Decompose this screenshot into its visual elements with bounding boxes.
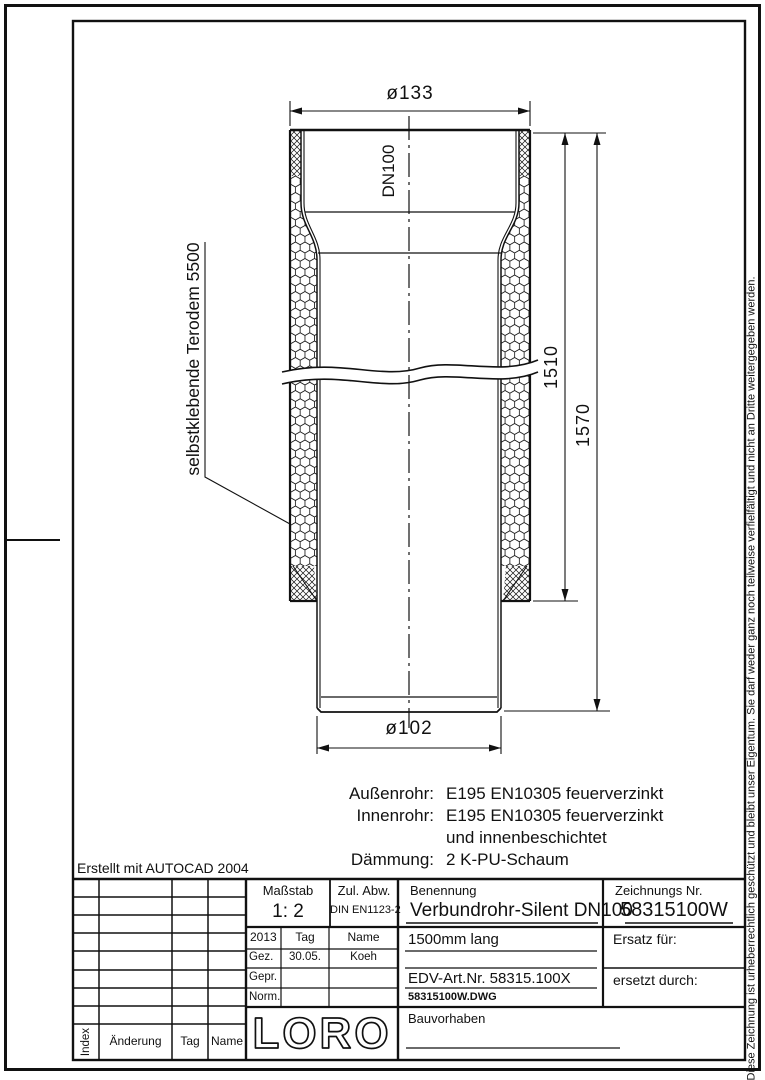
material-row: Innenrohr: E195 EN10305 feuerverzinkt <box>330 805 663 827</box>
material-label: Dämmung: <box>330 849 434 871</box>
dim-top-diameter: ø133 <box>350 83 470 105</box>
tolerance-value: DIN EN1123-2 <box>330 904 398 916</box>
dim-insulated-length: 1510 <box>542 332 560 402</box>
created-note: Erstellt mit AUTOCAD 2004 <box>77 860 249 876</box>
replaced-by-label: ersetzt durch: <box>613 972 698 988</box>
scale-label: Maßstab <box>246 883 330 898</box>
length-note: 1500mm lang <box>408 931 499 948</box>
approval-row-label: Norm. <box>249 991 280 1003</box>
approval-row-tag: 30.05. <box>281 951 329 963</box>
revision-index-label: Index <box>80 1022 92 1062</box>
material-label: Außenrohr: <box>330 783 434 805</box>
seal-hatch-top-right <box>519 131 529 176</box>
edv-art-no: EDV-Art.Nr. 58315.100X <box>408 970 571 987</box>
name-value: Verbundrohr-Silent DN100 <box>410 900 633 922</box>
revision-name-label: Name <box>208 1034 246 1048</box>
copyright-note: Diese Zeichnung ist urheberrechtlich ges… <box>746 281 759 1080</box>
file-name: 58315100W.DWG <box>408 991 497 1003</box>
scale-value: 1: 2 <box>246 901 330 923</box>
approval-col-tag: Tag <box>281 930 329 944</box>
dimension-lines <box>205 101 610 754</box>
dim-bottom-diameter: ø102 <box>349 718 469 740</box>
insulation-note: selbstklebende Terodem 5500 <box>183 234 203 484</box>
approval-row-label: Gez. <box>249 951 273 963</box>
replacement-for-label: Ersatz für: <box>613 931 677 947</box>
material-row: Außenrohr: E195 EN10305 feuerverzinkt <box>330 783 663 805</box>
seal-hatch-top-left <box>291 131 301 176</box>
material-label <box>330 827 434 849</box>
dimension-arrows <box>290 108 601 752</box>
material-value: 2 K-PU-Schaum <box>446 849 569 871</box>
revision-change-label: Änderung <box>99 1034 172 1048</box>
material-value: E195 EN10305 feuerverzinkt <box>446 805 663 827</box>
pipe-size-label: DN100 <box>380 131 398 211</box>
material-row: Dämmung: 2 K-PU-Schaum <box>330 849 663 871</box>
approval-row-label: Gepr. <box>249 971 277 983</box>
material-value: E195 EN10305 feuerverzinkt <box>446 783 663 805</box>
loro-logo: LORO <box>252 1009 391 1058</box>
material-label: Innenrohr: <box>330 805 434 827</box>
revision-tag-label: Tag <box>172 1034 208 1048</box>
pipe-outline <box>290 130 530 712</box>
drawing-no-label: Zeichnungs Nr. <box>615 883 702 898</box>
drawing-no-value: 58315100W <box>603 899 745 922</box>
approval-year: 2013 <box>250 930 278 944</box>
project-label: Bauvorhaben <box>408 1011 485 1026</box>
approval-col-name: Name <box>329 930 398 944</box>
approval-row-name: Koeh <box>329 951 398 963</box>
dim-total-length: 1570 <box>574 390 592 460</box>
materials-block: Außenrohr: E195 EN10305 feuerverzinkt In… <box>330 783 663 871</box>
tolerance-label: Zul. Abw. <box>330 883 398 898</box>
drawing-sheet: LORO ø133 ø102 DN100 1510 1570 selbstkle… <box>0 0 765 1080</box>
material-row: und innenbeschichtet <box>330 827 663 849</box>
name-label: Benennung <box>410 883 477 898</box>
material-value: und innenbeschichtet <box>446 827 607 849</box>
